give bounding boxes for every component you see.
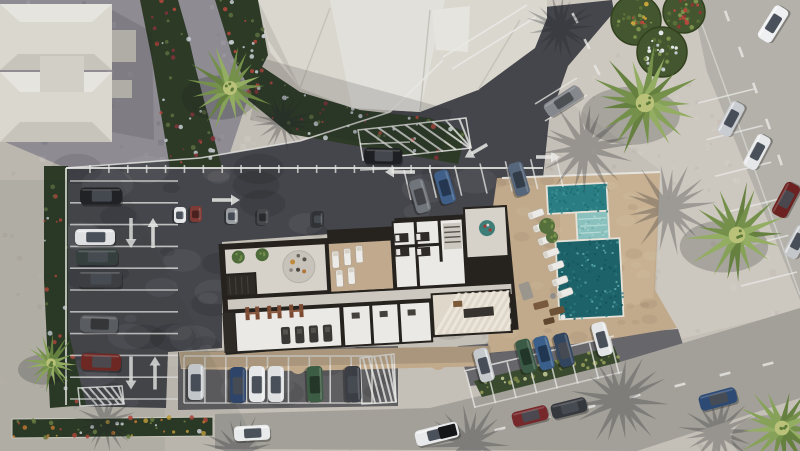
flower bbox=[166, 123, 170, 127]
mosaic-tile bbox=[582, 228, 584, 230]
car-highlight bbox=[235, 210, 237, 222]
mosaic-tile bbox=[592, 265, 594, 267]
mosaic-tile bbox=[596, 207, 598, 209]
flower bbox=[167, 19, 170, 22]
mosaic-tile bbox=[604, 264, 606, 266]
mosaic-tile bbox=[570, 191, 572, 193]
bush-flower bbox=[674, 46, 677, 49]
mosaic-tile bbox=[581, 266, 583, 268]
mosaic-tile bbox=[556, 200, 558, 202]
texture-blotch bbox=[631, 262, 641, 268]
flower bbox=[171, 55, 175, 59]
bush-flower bbox=[654, 48, 657, 51]
bush-flower bbox=[667, 11, 671, 15]
mosaic-tile bbox=[573, 261, 575, 263]
palm-crown bbox=[729, 227, 746, 244]
arrow-shaft bbox=[536, 155, 552, 159]
flower bbox=[151, 16, 154, 19]
bush-flower bbox=[633, 35, 637, 39]
mosaic-tile bbox=[561, 212, 563, 214]
car-glass bbox=[86, 232, 105, 243]
mosaic-tile bbox=[576, 252, 578, 254]
bush-flower bbox=[641, 15, 643, 17]
mosaic-tile bbox=[614, 288, 616, 290]
mosaic-tile bbox=[566, 284, 568, 286]
bush-flower bbox=[637, 21, 640, 24]
mosaic-tile bbox=[565, 253, 567, 255]
mosaic-tile bbox=[597, 193, 599, 195]
mosaic-tile bbox=[606, 292, 608, 294]
flower bbox=[200, 141, 202, 143]
mosaic-tile bbox=[590, 224, 592, 226]
mosaic-tile bbox=[559, 200, 561, 202]
mosaic-tile bbox=[622, 296, 624, 298]
car-highlight bbox=[266, 211, 268, 223]
car bbox=[172, 207, 186, 224]
car bbox=[364, 148, 403, 167]
palm-crown-dot bbox=[785, 425, 788, 428]
flower bbox=[543, 372, 548, 377]
mosaic-tile bbox=[567, 265, 569, 267]
bush-flower bbox=[643, 24, 648, 29]
mosaic-tile bbox=[589, 240, 591, 242]
car bbox=[228, 367, 246, 404]
texture-blotch bbox=[616, 215, 636, 227]
bush-flower bbox=[646, 62, 649, 65]
mosaic-tile bbox=[584, 227, 586, 229]
fixture bbox=[352, 312, 360, 318]
texture-speck bbox=[221, 41, 225, 45]
texture-blotch bbox=[617, 320, 625, 325]
mosaic-tile bbox=[565, 301, 567, 303]
texture-speck bbox=[732, 178, 736, 182]
flower bbox=[171, 114, 175, 118]
car-glass bbox=[252, 376, 263, 393]
building-b-corner bbox=[432, 6, 470, 52]
texture-speck bbox=[482, 335, 486, 339]
mosaic-tile bbox=[573, 203, 575, 205]
flower bbox=[250, 69, 254, 73]
flower bbox=[586, 366, 589, 369]
texture-blotch bbox=[531, 281, 544, 289]
bush-flower bbox=[638, 14, 642, 18]
car-glass bbox=[90, 318, 109, 330]
mosaic-tile bbox=[568, 263, 570, 265]
round-planter-bush bbox=[637, 27, 687, 77]
flower bbox=[207, 131, 210, 134]
bush-flower bbox=[651, 40, 653, 42]
mosaic-tile bbox=[599, 218, 601, 220]
mosaic-tile bbox=[578, 225, 580, 227]
mosaic-tile bbox=[615, 303, 617, 305]
mosaic-tile bbox=[573, 193, 575, 195]
mosaic-tile bbox=[553, 210, 555, 212]
texture-blotch bbox=[625, 303, 634, 308]
texture-speck bbox=[252, 142, 256, 146]
mosaic-tile bbox=[575, 247, 577, 249]
mosaic-tile bbox=[587, 229, 589, 231]
car bbox=[342, 366, 361, 404]
flower bbox=[501, 377, 504, 380]
mosaic-tile bbox=[616, 281, 618, 283]
mosaic-tile bbox=[594, 253, 596, 255]
mosaic-tile bbox=[586, 295, 588, 297]
texture-blotch bbox=[641, 315, 657, 325]
texture-speck bbox=[696, 169, 700, 173]
bush-flower bbox=[661, 67, 665, 71]
mosaic-tile bbox=[595, 225, 597, 227]
mosaic-tile bbox=[610, 242, 612, 244]
car bbox=[247, 366, 265, 403]
flower bbox=[523, 377, 527, 381]
mosaic-tile bbox=[602, 291, 604, 293]
mosaic-tile bbox=[595, 290, 597, 292]
car-highlight bbox=[201, 366, 203, 398]
mosaic-tile bbox=[551, 191, 553, 193]
flower bbox=[250, 49, 253, 52]
flower bbox=[244, 20, 246, 22]
flower bbox=[581, 363, 585, 367]
mosaic-tile bbox=[597, 186, 599, 188]
bush-flower bbox=[640, 21, 644, 25]
mosaic-tile bbox=[573, 274, 575, 276]
flower bbox=[170, 155, 172, 157]
mosaic-tile bbox=[605, 315, 607, 317]
texture-speck bbox=[217, 138, 221, 142]
flower bbox=[504, 381, 506, 383]
mosaic-tile bbox=[584, 256, 586, 258]
mosaic-tile bbox=[612, 252, 614, 254]
flower bbox=[169, 76, 172, 79]
fixture bbox=[407, 309, 415, 315]
mosaic-tile bbox=[581, 317, 583, 319]
mosaic-tile bbox=[584, 204, 586, 206]
flower bbox=[230, 0, 234, 4]
mosaic-tile bbox=[601, 231, 603, 233]
mosaic-tile bbox=[563, 200, 565, 202]
mosaic-tile bbox=[570, 210, 572, 212]
texture-blotch bbox=[628, 204, 638, 210]
mosaic-tile bbox=[549, 208, 551, 210]
texture-blotch bbox=[540, 177, 554, 186]
spa-pillow bbox=[344, 249, 349, 253]
flower bbox=[251, 19, 254, 22]
mosaic-tile bbox=[613, 301, 615, 303]
bed-pillow bbox=[396, 249, 400, 255]
texture-speck bbox=[725, 160, 731, 166]
building-a-connector bbox=[40, 56, 84, 92]
car bbox=[224, 208, 238, 225]
mosaic-tile bbox=[604, 251, 606, 253]
mosaic-tile bbox=[593, 215, 595, 217]
flower bbox=[616, 355, 620, 359]
bush-flower bbox=[673, 9, 676, 12]
mosaic-tile bbox=[599, 241, 601, 243]
car bbox=[186, 364, 204, 401]
flower bbox=[179, 125, 183, 129]
flower bbox=[262, 34, 266, 38]
mosaic-tile bbox=[580, 285, 582, 287]
mosaic-tile bbox=[612, 306, 614, 308]
car bbox=[310, 211, 324, 228]
bush-flower bbox=[667, 45, 669, 47]
flower bbox=[210, 136, 215, 141]
flower bbox=[180, 161, 182, 163]
mosaic-tile bbox=[584, 282, 586, 284]
mosaic-tile bbox=[599, 294, 601, 296]
texture-speck bbox=[11, 172, 15, 176]
texture-speck bbox=[696, 329, 700, 333]
flower bbox=[191, 145, 196, 150]
car bbox=[76, 249, 119, 267]
spa-pillow bbox=[349, 268, 354, 272]
mosaic-tile bbox=[559, 189, 561, 191]
mosaic-tile bbox=[594, 194, 596, 196]
car bbox=[304, 366, 323, 404]
flower bbox=[181, 33, 183, 35]
texture-speck bbox=[612, 164, 616, 168]
mosaic-tile bbox=[606, 210, 608, 212]
mosaic-tile bbox=[573, 277, 575, 279]
mosaic-tile bbox=[570, 314, 572, 316]
texture-speck bbox=[706, 144, 710, 148]
bush-flower bbox=[665, 60, 669, 64]
mosaic-tile bbox=[586, 251, 588, 253]
flower bbox=[173, 8, 176, 11]
palm-crown-dot bbox=[736, 236, 739, 239]
mosaic-tile bbox=[582, 253, 584, 255]
mosaic-tile bbox=[561, 207, 563, 209]
bush-flower bbox=[617, 24, 620, 27]
car-highlight bbox=[77, 231, 113, 233]
flower bbox=[600, 359, 602, 361]
mosaic-tile bbox=[565, 193, 567, 195]
mosaic-tile bbox=[596, 247, 598, 249]
flower bbox=[228, 13, 233, 18]
texture-speck bbox=[222, 54, 226, 58]
bush-flower bbox=[673, 21, 678, 26]
texture-blotch bbox=[636, 270, 651, 279]
bush-flower bbox=[679, 18, 681, 20]
bush-flower bbox=[665, 52, 668, 55]
mosaic-tile bbox=[577, 192, 579, 194]
mosaic-tile bbox=[571, 188, 573, 190]
bush-flower bbox=[667, 19, 670, 22]
mosaic-tile bbox=[555, 193, 557, 195]
mosaic-tile bbox=[566, 208, 568, 210]
mosaic-tile bbox=[574, 303, 576, 305]
mosaic-tile bbox=[585, 260, 587, 262]
flower bbox=[211, 149, 215, 153]
mosaic-tile bbox=[614, 295, 616, 297]
car-highlight bbox=[281, 368, 283, 400]
mosaic-tile bbox=[599, 306, 601, 308]
texture-blotch bbox=[163, 183, 180, 193]
mosaic-tile bbox=[579, 229, 581, 231]
texture-blotch bbox=[208, 171, 230, 184]
flower bbox=[587, 351, 590, 354]
site-render-canvas bbox=[0, 0, 800, 451]
flower bbox=[323, 135, 328, 140]
mosaic-tile bbox=[602, 245, 604, 247]
mosaic-tile bbox=[597, 223, 599, 225]
bush-flower bbox=[644, 17, 647, 20]
mosaic-tile bbox=[565, 308, 567, 310]
texture-blotch bbox=[640, 299, 657, 309]
flower bbox=[186, 37, 191, 42]
mosaic-tile bbox=[617, 285, 619, 287]
car-glass bbox=[191, 374, 202, 391]
flower bbox=[255, 70, 258, 73]
car-highlight bbox=[321, 213, 323, 225]
gym-machine-pad bbox=[283, 329, 288, 334]
bush-flower bbox=[699, 11, 702, 14]
car-highlight bbox=[243, 369, 245, 401]
bush-flower bbox=[648, 46, 651, 49]
mosaic-tile bbox=[605, 259, 607, 261]
bed-pillow bbox=[395, 235, 399, 241]
bush-flower bbox=[666, 37, 670, 41]
mosaic-tile bbox=[573, 318, 575, 320]
texture-blotch bbox=[514, 232, 530, 242]
arrow-shaft bbox=[212, 198, 232, 202]
mosaic-tile bbox=[554, 197, 556, 199]
mosaic-tile bbox=[577, 263, 579, 265]
flower bbox=[165, 51, 169, 55]
mosaic-tile bbox=[599, 303, 601, 305]
mosaic-tile bbox=[570, 307, 572, 309]
flower bbox=[162, 98, 165, 101]
flower bbox=[255, 33, 260, 38]
car-glass bbox=[271, 376, 282, 393]
mosaic-tile bbox=[579, 234, 581, 236]
texture-speck bbox=[770, 270, 776, 276]
mosaic-tile bbox=[602, 234, 604, 236]
texture-speck bbox=[707, 189, 710, 192]
mosaic-tile bbox=[550, 212, 552, 214]
mosaic-tile bbox=[551, 197, 553, 199]
mosaic-tile bbox=[558, 288, 560, 290]
bush-flower bbox=[657, 49, 659, 51]
bush-flower bbox=[685, 3, 688, 6]
flower bbox=[249, 54, 254, 59]
mosaic-tile bbox=[607, 238, 609, 240]
bush-flower bbox=[684, 19, 686, 21]
spa-pillow bbox=[356, 247, 361, 251]
car-highlight bbox=[82, 189, 120, 191]
plant-leaf bbox=[543, 220, 545, 222]
texture-speck bbox=[230, 59, 234, 63]
fixture bbox=[379, 311, 387, 317]
palm-crown-dot bbox=[648, 101, 651, 104]
gym-machine bbox=[309, 325, 319, 342]
texture-speck bbox=[670, 83, 674, 87]
car-glass bbox=[375, 151, 393, 162]
mosaic-tile bbox=[577, 286, 579, 288]
bush-flower bbox=[674, 51, 677, 54]
texture-speck bbox=[245, 136, 251, 142]
mosaic-tile bbox=[592, 199, 594, 201]
mosaic-tile bbox=[576, 189, 578, 191]
mosaic-tile bbox=[563, 193, 565, 195]
bush-flower bbox=[658, 39, 661, 42]
mosaic-tile bbox=[591, 227, 593, 229]
mosaic-tile bbox=[586, 209, 588, 211]
car-highlight bbox=[78, 251, 116, 253]
flower bbox=[164, 139, 167, 142]
texture-speck bbox=[217, 34, 220, 37]
mosaic-tile bbox=[591, 234, 593, 236]
texture-speck bbox=[657, 270, 660, 273]
bush-flower bbox=[633, 15, 635, 17]
texture-speck bbox=[722, 303, 724, 305]
mosaic-tile bbox=[597, 279, 599, 281]
texture-speck bbox=[632, 148, 637, 153]
mosaic-tile bbox=[610, 297, 612, 299]
flower bbox=[183, 148, 185, 150]
mosaic-tile bbox=[594, 296, 596, 298]
bush-flower bbox=[650, 22, 652, 24]
flower bbox=[194, 153, 198, 157]
mosaic-tile bbox=[609, 291, 611, 293]
mosaic-tile bbox=[567, 313, 569, 315]
texture-speck bbox=[692, 129, 694, 131]
bush-flower bbox=[677, 25, 681, 29]
mosaic-tile bbox=[584, 224, 586, 226]
texture-speck bbox=[674, 95, 679, 100]
palm-crown-dot bbox=[740, 234, 743, 237]
mosaic-tile bbox=[586, 254, 588, 256]
car bbox=[255, 209, 269, 226]
side-table bbox=[550, 293, 556, 299]
bush-flower bbox=[691, 3, 695, 7]
mosaic-tile bbox=[586, 268, 588, 270]
coffee-table bbox=[453, 301, 462, 307]
texture-blotch bbox=[198, 292, 218, 304]
mosaic-tile bbox=[609, 239, 611, 241]
car-glass bbox=[90, 273, 111, 284]
bush-flower bbox=[683, 15, 686, 18]
mosaic-tile bbox=[589, 243, 591, 245]
bush-flower bbox=[623, 13, 626, 16]
palm-crown-dot bbox=[50, 361, 53, 364]
mosaic-tile bbox=[603, 268, 605, 270]
mosaic-tile bbox=[622, 292, 624, 294]
plant-leaf bbox=[550, 236, 552, 238]
car bbox=[78, 271, 123, 290]
mosaic-tile bbox=[565, 201, 567, 203]
bush-flower bbox=[696, 4, 699, 7]
gym-machine bbox=[295, 326, 305, 343]
gym-machine bbox=[323, 324, 333, 341]
texture-speck bbox=[657, 155, 660, 158]
changing-rooms bbox=[342, 301, 432, 346]
bush-flower bbox=[659, 30, 664, 35]
mosaic-tile bbox=[596, 242, 598, 244]
gym-machine-pad bbox=[297, 329, 302, 334]
mosaic-tile bbox=[586, 310, 588, 312]
mosaic-tile bbox=[578, 186, 580, 188]
mosaic-tile bbox=[569, 280, 571, 282]
car-glass bbox=[309, 376, 320, 394]
bed-pillow bbox=[416, 234, 420, 240]
bush-flower bbox=[697, 20, 700, 23]
texture-speck bbox=[639, 152, 642, 155]
bush-flower bbox=[647, 49, 651, 53]
flower bbox=[555, 360, 557, 362]
flower bbox=[260, 27, 264, 31]
palm-crown-dot bbox=[230, 89, 233, 92]
